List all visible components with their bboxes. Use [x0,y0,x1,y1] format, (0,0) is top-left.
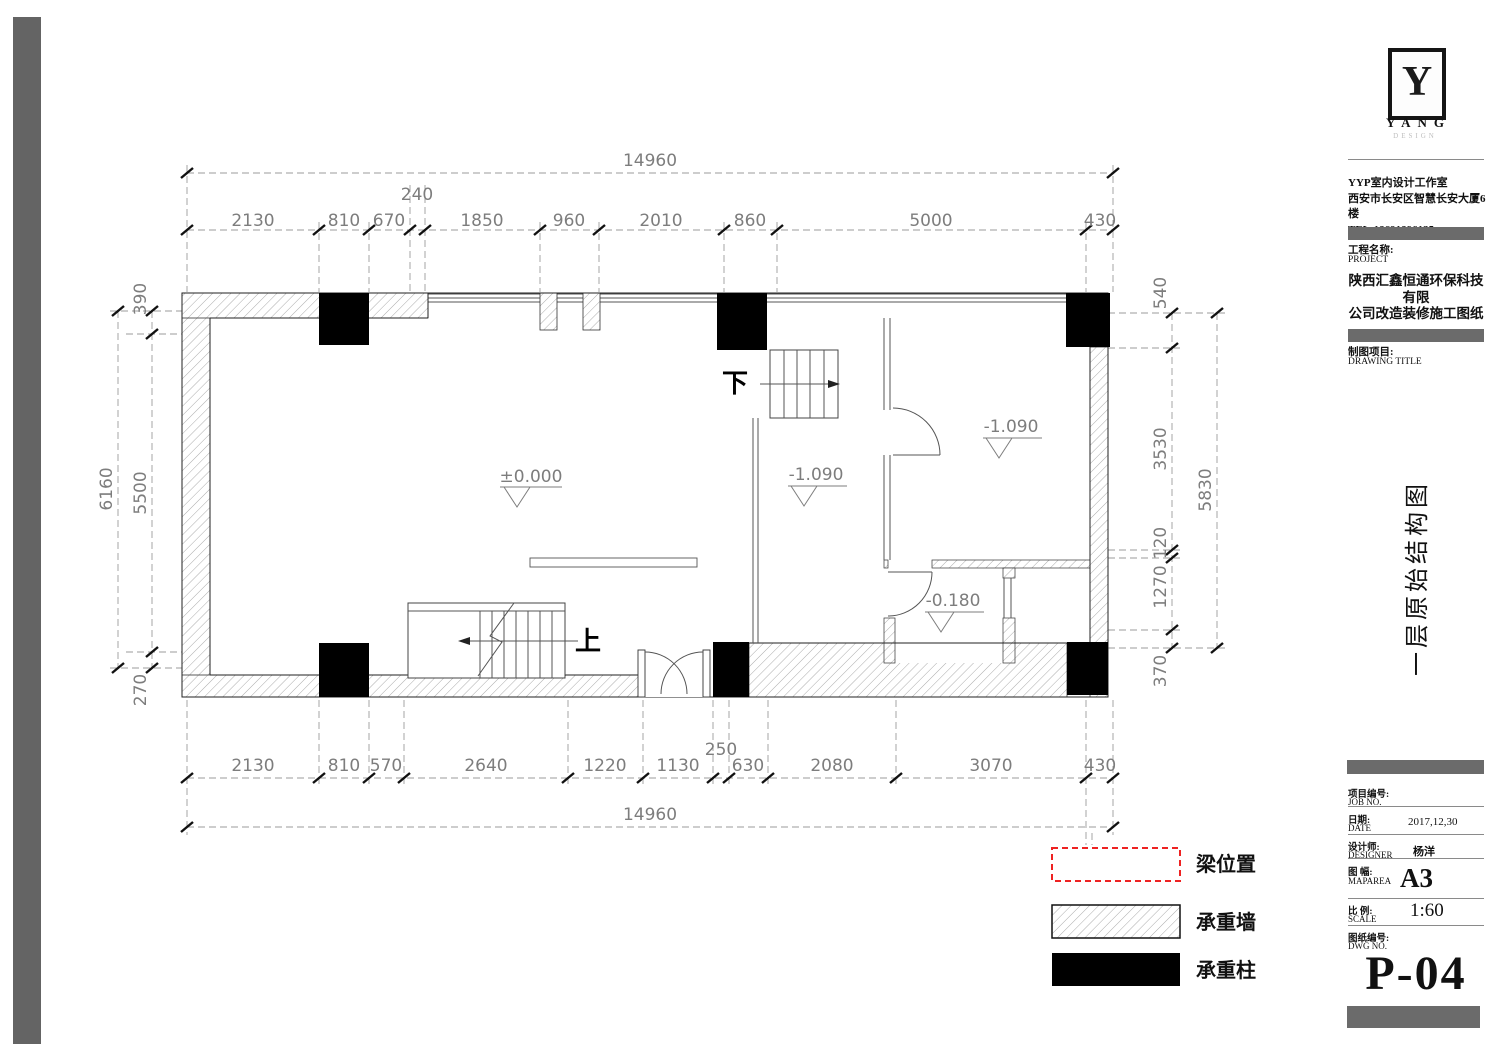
section-bar [1348,227,1484,240]
dim-top-1: 810 [328,211,360,231]
beam-outline [530,558,697,567]
column [713,642,749,697]
dim-top-0: 2130 [231,211,274,231]
dim-right-370: 370 [1151,655,1171,687]
room-pier [884,618,895,663]
dim-top-2: 670 [373,211,405,231]
divider [1348,159,1484,160]
room-pier [1003,618,1015,663]
dim-top-8: 5000 [909,211,952,231]
legend-column-swatch [1052,953,1180,986]
room-door [893,408,940,455]
project-label-en: PROJECT [1348,255,1388,265]
outer-boundary [182,293,1108,697]
drawing-sheet: 14960 2130 810 670 240 1850 960 2010 860… [0,0,1500,1061]
walls [182,293,1108,697]
column [319,293,369,345]
interior [408,318,940,697]
maparea-value: A3 [1400,863,1433,894]
dim-top-4: 1850 [460,211,503,231]
dim-bot-1: 810 [328,756,360,776]
dim-top-overall: 14960 [623,151,677,171]
window-pier [540,293,557,330]
studio-name: YYP室内设计工作室 [1348,176,1488,192]
logo-subtitle: DESIGN [1345,132,1485,140]
row-divider [1348,925,1484,926]
level-m1090-corridor: -1.090 [789,465,844,485]
stair-down [760,350,840,418]
dim-top-7: 860 [734,211,766,231]
level-m0180: -0.180 [926,591,981,611]
date-value: 2017,12,30 [1408,816,1458,828]
dim-bot-overall: 14960 [623,805,677,825]
level-m1090-room: -1.090 [984,417,1039,437]
dim-bot-3: 2640 [464,756,507,776]
column [1066,293,1110,347]
date-label-en: DATE [1348,823,1371,833]
maparea-label-en: MAPAREA [1348,876,1391,886]
dim-bot-0: 2130 [231,756,274,776]
row-divider [1348,898,1484,899]
top-wall-solid [182,293,428,318]
dimension-ticks [112,168,1223,832]
dim-right-3530: 3530 [1151,427,1171,470]
dim-left-270: 270 [131,674,151,706]
legend: 梁位置 承重墙 承重柱 [1052,833,1256,986]
dimension-labels: 14960 2130 810 670 240 1850 960 2010 860… [97,151,1216,825]
legend-wall-label: 承重墙 [1196,910,1256,934]
dim-top-9: 430 [1084,211,1116,231]
floor-plan-canvas: 14960 2130 810 670 240 1850 960 2010 860… [0,0,1500,1061]
legend-wall-swatch [1052,905,1180,938]
legend-beam-swatch [1052,848,1180,881]
dim-right-540: 540 [1151,277,1171,309]
column [717,293,767,350]
stair-up [408,603,578,678]
dim-right-1270: 1270 [1151,565,1171,608]
stair-down-label: 下 [722,369,748,398]
column [1067,642,1108,695]
logo-letter: Y [1402,61,1432,103]
legend-column-label: 承重柱 [1196,958,1256,982]
designer-value: 杨洋 [1413,843,1435,859]
dim-right-120: 120 [1151,527,1171,559]
entry-double-door [638,650,710,697]
project-name-line1: 陕西汇鑫恒通环保科技有限 [1345,273,1487,306]
stair-up-label: 上 [575,627,601,656]
project-name-line2: 公司改造装修施工图纸 [1345,306,1487,323]
studio-address: 西安市长安区智慧长安大厦6楼 [1348,192,1488,223]
project-name: 陕西汇鑫恒通环保科技有限 公司改造装修施工图纸 [1345,273,1487,323]
dimension-lines [110,165,1225,845]
dwg-number: P-04 [1345,946,1487,1001]
legend-beam-label: 梁位置 [1195,852,1256,876]
left-wall [182,293,210,697]
dim-left-6160: 6160 [97,467,117,510]
dim-left-5500: 5500 [131,471,151,514]
dim-bot-10: 430 [1084,756,1116,776]
section-bar [1348,329,1484,342]
dim-bot-2: 570 [370,756,402,776]
row-divider [1348,806,1484,807]
dim-top-3: 240 [401,185,433,205]
scale-value: 1:60 [1410,900,1444,922]
dim-right-5830: 5830 [1196,468,1216,511]
dim-bot-4: 1220 [583,756,626,776]
window-pier [583,293,600,330]
drawing-label-en: DRAWING TITLE [1348,357,1422,367]
dim-bot-7: 630 [732,756,764,776]
room-pier [1003,568,1015,578]
column [319,643,369,697]
scale-label-en: SCALE [1348,914,1377,924]
dim-top-6: 2010 [639,211,682,231]
dim-bot-5: 1130 [656,756,699,776]
row-divider [1348,858,1484,859]
logo-name: YANG [1345,115,1485,131]
room-top-wall [932,560,1090,568]
logo: Y [1388,48,1446,120]
level-zero: ±0.000 [500,467,563,487]
row-divider [1348,834,1484,835]
section-bar [1347,1006,1480,1028]
dim-bot-9: 3070 [969,756,1012,776]
dim-bot-8: 2080 [810,756,853,776]
section-bar [1347,760,1484,774]
dim-left-390: 390 [131,283,151,315]
dim-top-5: 960 [553,211,585,231]
drawing-title-vertical: 一层原始结构图 [1397,478,1427,678]
